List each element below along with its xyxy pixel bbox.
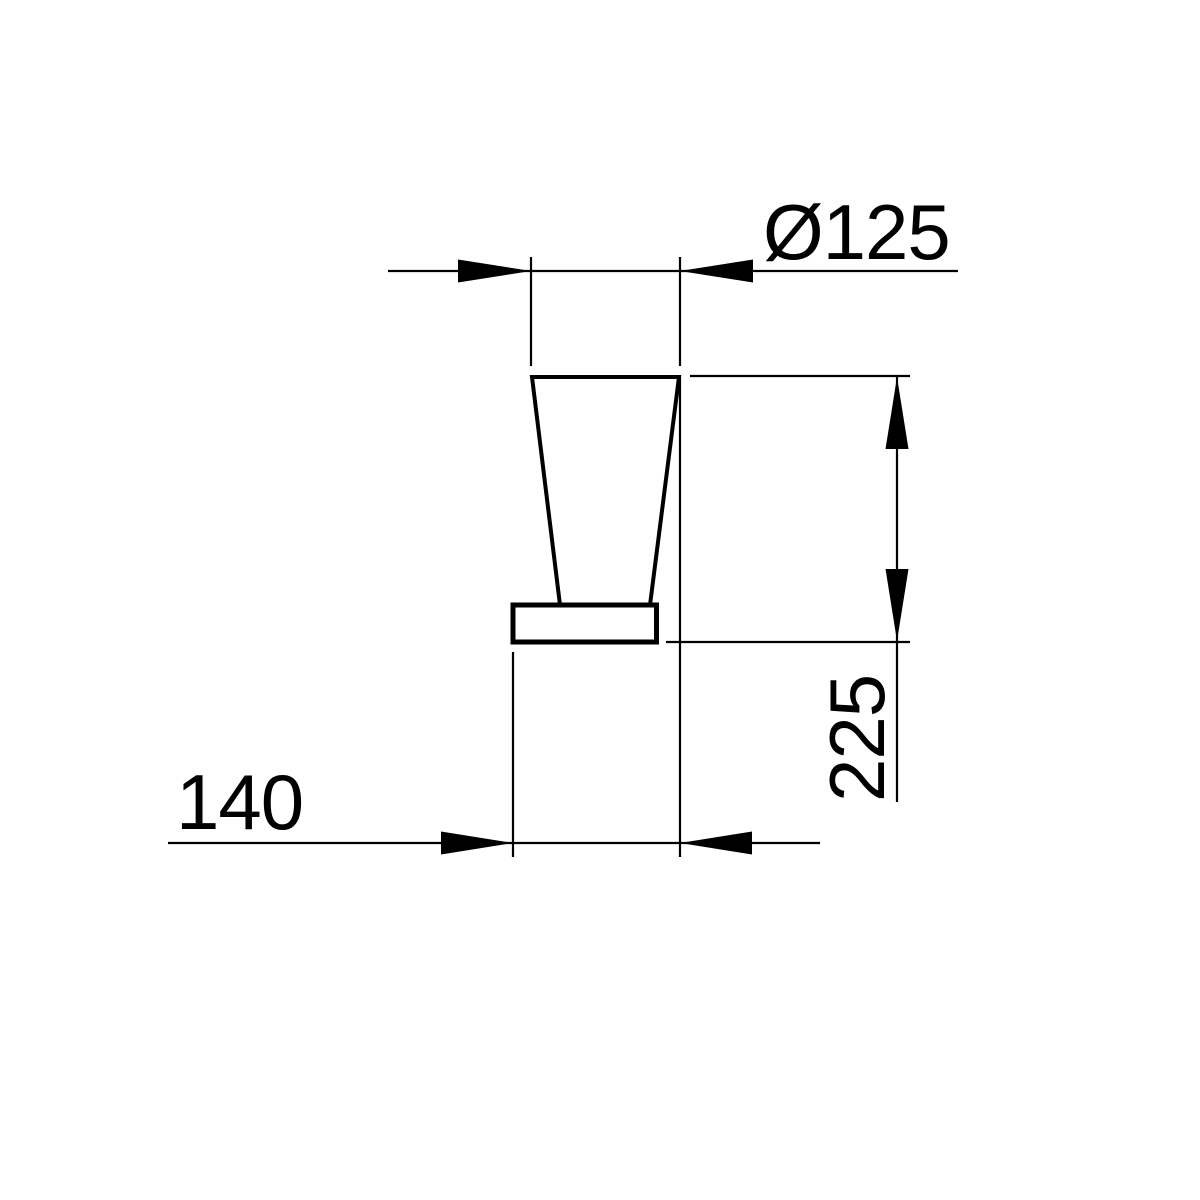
diameter-arrowhead-right [680,260,753,283]
depth-arrowhead-left [441,832,513,855]
technical-drawing: Ø125 225 140 [0,0,1200,1200]
depth-dimension-label: 140 [176,758,303,846]
object-bracket [513,605,657,642]
dimension-diameter: Ø125 [388,188,958,366]
dimension-depth: 140 [168,377,820,857]
height-arrowhead-down [886,569,909,641]
tumbler-outline [532,377,679,605]
object-tumbler [532,377,679,605]
diameter-arrowhead-left [458,260,531,283]
diameter-dimension-label: Ø125 [763,188,950,276]
technical-drawing-sheet: Ø125 225 140 [0,0,1200,1200]
depth-arrowhead-right [680,832,752,855]
bracket-outline [513,605,657,642]
dimension-height: 225 [666,376,910,802]
height-arrowhead-up [886,377,909,449]
height-dimension-label: 225 [813,675,901,802]
